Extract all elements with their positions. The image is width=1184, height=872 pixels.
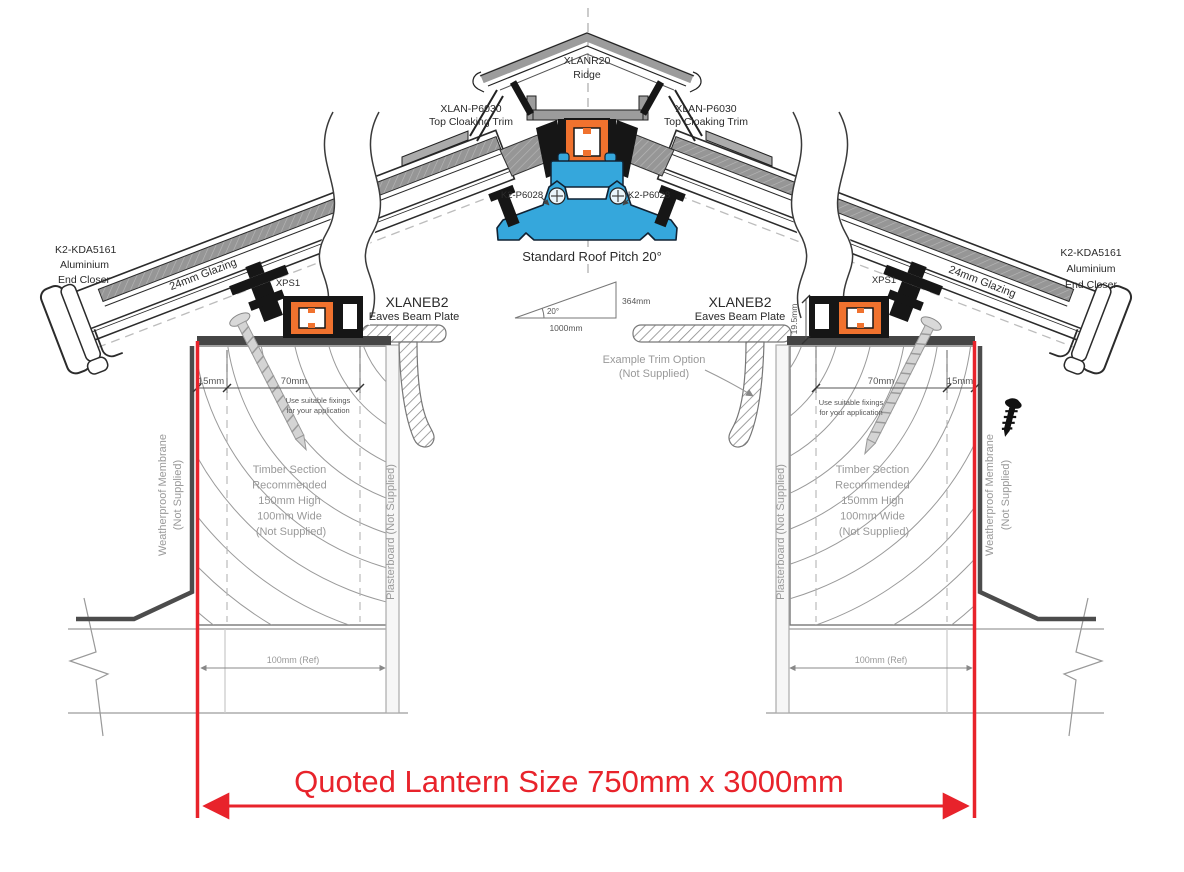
svg-text:K2-KDA5161: K2-KDA5161 [55,244,116,256]
dim-ref-right: 100mm (Ref) [855,655,908,665]
quoted-size-label: Quoted Lantern Size 750mm x 3000mm [294,764,844,799]
eaves-part-label-left: XLANEB2 [385,294,448,310]
pitch-triangle [515,282,616,318]
trim-option-right [633,325,791,447]
technical-drawing: 24mm Glazing 24mm Glazing [0,0,1184,872]
cloaking-part-label-left: XLAN-P6030 [440,103,501,115]
timber-note-right: Timber Section Recommended 150mm High 10… [835,464,913,538]
dim-15mm-right: 15mm [947,376,973,387]
xps1-label-right: XPS1 [872,275,896,286]
fixing-note-right: Use suitable fixings for your applicatio… [819,398,884,417]
dim-ref-left: 100mm (Ref) [267,655,320,665]
svg-text:K2-KDA5161: K2-KDA5161 [1060,247,1121,259]
svg-text:End Closer: End Closer [1065,279,1117,291]
roof-pitch-label: Standard Roof Pitch 20° [522,249,662,264]
fixing-note-left: Use suitable fixings for your applicatio… [286,396,351,415]
svg-text:Aluminium: Aluminium [60,259,109,271]
dim-15mm-left: 15mm [198,376,224,387]
svg-text:for your application: for your application [819,408,882,417]
trim-note-line2: (Not Supplied) [619,368,689,380]
ridge-body-blue [551,161,623,187]
end-closer-label-left: K2-KDA5161 Aluminium End Closer [55,244,116,286]
svg-text:End Closer: End Closer [58,274,110,286]
cloaking-name-label-right: Top Cloaking Trim [664,116,748,128]
dim-70mm-left: 70mm [281,376,307,387]
pitch-rise-label: 364mm [622,296,650,306]
eaves-part-label-right: XLANEB2 [708,294,771,310]
svg-text:Aluminium: Aluminium [1066,263,1115,275]
svg-text:Use suitable fixings: Use suitable fixings [286,396,351,405]
membrane-note-right-1: Weatherproof Membrane [984,434,996,556]
membrane-note-left-2: (Not Supplied) [172,460,184,530]
plasterboard-note-right: Plasterboard (Not Supplied) [775,464,787,600]
dim-70mm-right: 70mm [868,376,894,387]
eaves-name-label-left: Eaves Beam Plate [369,311,460,323]
cloaking-name-label-left: Top Cloaking Trim [429,116,513,128]
end-closer-label-right: K2-KDA5161 Aluminium End Closer [1060,247,1121,291]
eaves-name-label-right: Eaves Beam Plate [695,311,786,323]
dim-19-5mm: 19.5mm [789,304,799,335]
svg-text:for your application: for your application [286,406,349,415]
pitch-base-label: 1000mm [549,323,582,333]
xps1-label-left: XPS1 [276,278,300,289]
ridge-name-label: Ridge [573,69,601,81]
membrane-note-left-1: Weatherproof Membrane [157,434,169,556]
membrane-right [980,346,1096,619]
screw-icon [997,396,1023,439]
trim-note-line1: Example Trim Option [603,354,706,366]
roof-lantern-section-svg: 24mm Glazing 24mm Glazing [0,0,1184,872]
pitch-angle-label: 20° [547,307,559,316]
cloaking-part-label-right: XLAN-P6030 [675,103,736,115]
glazing-bar-label-right: K2-P6028 [628,190,670,201]
glazing-pane-left [98,137,500,302]
timber-note-left: Timber Section Recommended 150mm High 10… [252,464,330,538]
svg-text:Use suitable fixings: Use suitable fixings [819,398,884,407]
ridge-part-label: XLANR20 [564,55,611,67]
eaves-beam-right [809,296,889,338]
plasterboard-note-left: Plasterboard (Not Supplied) [385,464,397,600]
membrane-note-right-2: (Not Supplied) [1000,460,1012,530]
glazing-bar-label-left: K2-P6028 [501,190,543,201]
eaves-beam-left [283,296,363,338]
